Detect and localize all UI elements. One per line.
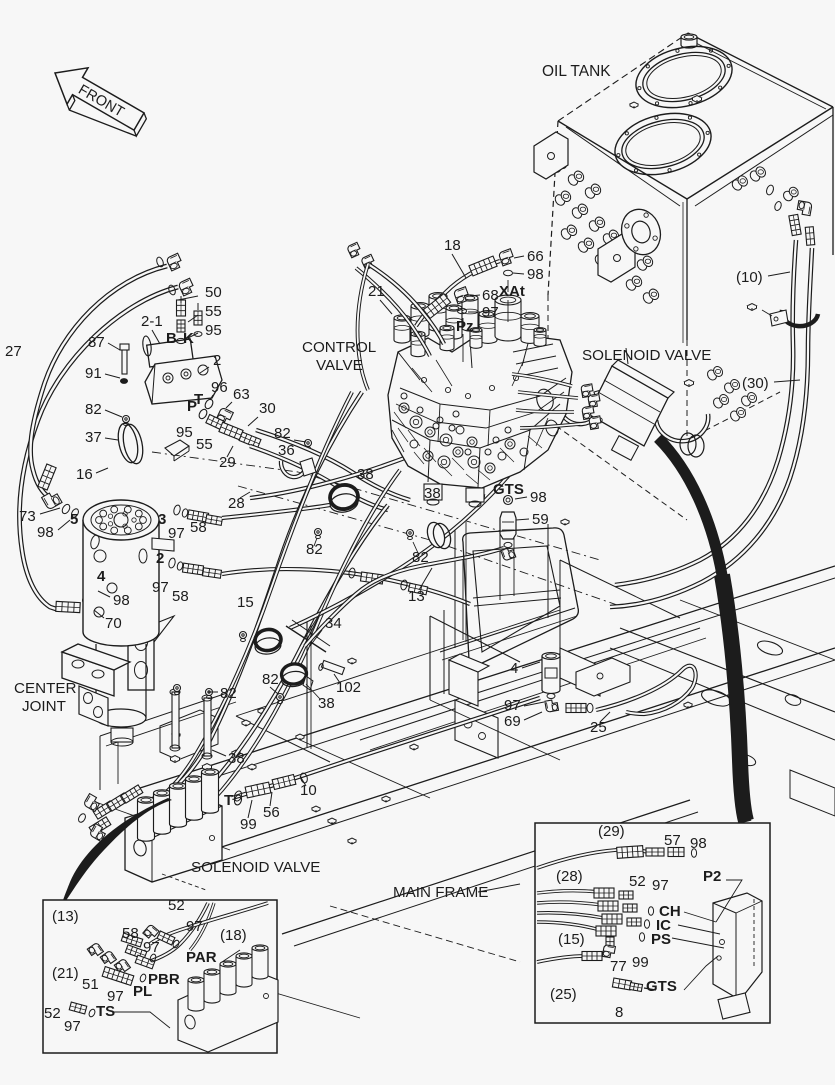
- svg-text:38: 38: [318, 695, 335, 712]
- svg-text:97: 97: [152, 579, 169, 596]
- svg-text:82: 82: [220, 685, 237, 702]
- svg-text:(13): (13): [52, 908, 79, 925]
- svg-text:T: T: [224, 792, 233, 809]
- svg-text:GTS: GTS: [493, 481, 524, 498]
- svg-text:58: 58: [190, 519, 207, 536]
- svg-text:82: 82: [306, 541, 323, 558]
- svg-text:VALVE: VALVE: [316, 357, 363, 374]
- svg-text:18: 18: [444, 237, 461, 254]
- svg-text:27: 27: [5, 343, 22, 360]
- svg-text:(25): (25): [550, 986, 577, 1003]
- svg-text:(28): (28): [556, 868, 583, 885]
- svg-text:55: 55: [205, 303, 222, 320]
- svg-text:55: 55: [196, 436, 213, 453]
- svg-text:59: 59: [532, 511, 549, 528]
- svg-text:(30): (30): [742, 375, 769, 392]
- svg-text:PS: PS: [651, 931, 671, 948]
- svg-text:56: 56: [263, 804, 280, 821]
- svg-text:CENTER: CENTER: [14, 680, 76, 697]
- svg-text:70: 70: [105, 615, 122, 632]
- svg-text:97: 97: [143, 939, 160, 956]
- svg-text:25: 25: [590, 719, 607, 736]
- svg-text:CONTROL: CONTROL: [302, 339, 376, 356]
- svg-text:JOINT: JOINT: [22, 698, 66, 715]
- svg-text:58: 58: [122, 925, 139, 942]
- svg-text:38: 38: [357, 466, 374, 483]
- svg-text:4: 4: [510, 660, 518, 677]
- svg-text:OIL TANK: OIL TANK: [542, 63, 611, 80]
- svg-text:102: 102: [336, 679, 361, 696]
- svg-text:66: 66: [527, 248, 544, 265]
- svg-text:36: 36: [278, 442, 295, 459]
- svg-text:XAt: XAt: [499, 283, 525, 300]
- svg-text:98: 98: [113, 592, 130, 609]
- svg-text:TS: TS: [96, 1003, 115, 1020]
- svg-text:50: 50: [205, 284, 222, 301]
- svg-text:98: 98: [690, 835, 707, 852]
- svg-text:(15): (15): [558, 931, 585, 948]
- svg-text:95: 95: [205, 322, 222, 339]
- svg-text:(29): (29): [598, 823, 625, 840]
- svg-text:97: 97: [504, 697, 521, 714]
- svg-text:15: 15: [237, 594, 254, 611]
- svg-text:63: 63: [233, 386, 250, 403]
- svg-text:2: 2: [156, 550, 164, 567]
- svg-text:P: P: [187, 398, 197, 415]
- svg-text:2-1: 2-1: [141, 313, 163, 330]
- svg-text:77: 77: [610, 958, 627, 975]
- svg-text:98: 98: [527, 266, 544, 283]
- svg-text:97: 97: [482, 304, 499, 321]
- svg-text:52: 52: [629, 873, 646, 890]
- svg-text:GTS: GTS: [646, 978, 677, 995]
- svg-text:57: 57: [664, 832, 681, 849]
- svg-text:Pz: Pz: [456, 318, 474, 335]
- svg-text:SOLENOID VALVE: SOLENOID VALVE: [582, 347, 711, 364]
- svg-text:5: 5: [70, 511, 78, 528]
- svg-text:SOLENOID VALVE: SOLENOID VALVE: [191, 859, 320, 876]
- svg-text:97: 97: [64, 1018, 81, 1035]
- svg-text:52: 52: [44, 1005, 61, 1022]
- svg-text:82: 82: [412, 549, 429, 566]
- svg-text:PAR: PAR: [186, 949, 217, 966]
- svg-text:51: 51: [82, 976, 99, 993]
- svg-text:10: 10: [300, 782, 317, 799]
- svg-text:87: 87: [88, 334, 105, 351]
- svg-text:(21): (21): [52, 965, 79, 982]
- svg-text:8: 8: [615, 1004, 623, 1021]
- svg-text:21: 21: [368, 283, 385, 300]
- svg-text:98: 98: [37, 524, 54, 541]
- svg-text:B: B: [166, 330, 177, 347]
- svg-text:28: 28: [228, 495, 245, 512]
- svg-text:68: 68: [482, 287, 499, 304]
- svg-text:96: 96: [211, 379, 228, 396]
- svg-text:73: 73: [19, 508, 36, 525]
- svg-text:PL: PL: [133, 983, 152, 1000]
- svg-text:97: 97: [652, 877, 669, 894]
- svg-text:2: 2: [213, 352, 221, 369]
- svg-text:K: K: [183, 330, 194, 347]
- svg-text:38: 38: [228, 750, 245, 767]
- svg-text:PBR: PBR: [148, 971, 180, 988]
- svg-text:30: 30: [259, 400, 276, 417]
- svg-text:38: 38: [424, 485, 441, 502]
- svg-text:95: 95: [176, 424, 193, 441]
- svg-text:98: 98: [530, 489, 547, 506]
- svg-text:34: 34: [325, 615, 342, 632]
- svg-text:82: 82: [274, 425, 291, 442]
- svg-text:(10): (10): [736, 269, 763, 286]
- svg-text:99: 99: [632, 954, 649, 971]
- svg-text:MAIN FRAME: MAIN FRAME: [393, 884, 488, 901]
- svg-text:97: 97: [168, 525, 185, 542]
- svg-text:99: 99: [240, 816, 257, 833]
- svg-text:52: 52: [168, 897, 185, 914]
- svg-text:3: 3: [158, 511, 166, 528]
- svg-text:P2: P2: [703, 868, 721, 885]
- svg-text:58: 58: [172, 588, 189, 605]
- svg-text:82: 82: [85, 401, 102, 418]
- svg-text:91: 91: [85, 365, 102, 382]
- svg-text:97: 97: [186, 918, 203, 935]
- svg-text:37: 37: [85, 429, 102, 446]
- svg-text:82: 82: [262, 671, 279, 688]
- svg-text:4: 4: [97, 568, 106, 585]
- svg-text:69: 69: [504, 713, 521, 730]
- svg-text:13: 13: [408, 588, 425, 605]
- svg-text:16: 16: [76, 466, 93, 483]
- svg-text:(18): (18): [220, 927, 247, 944]
